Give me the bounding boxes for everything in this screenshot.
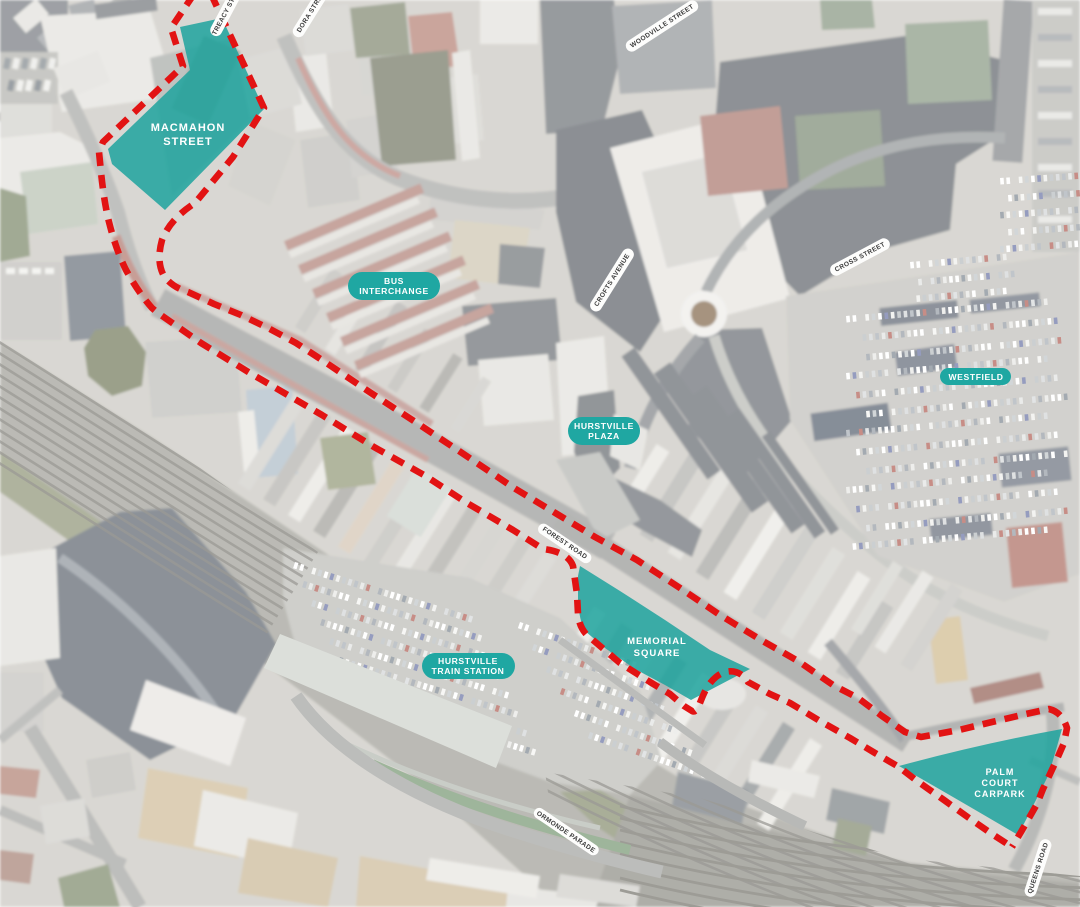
svg-text:HURSTVILLE: HURSTVILLE [438,656,498,666]
svg-text:WESTFIELD: WESTFIELD [948,372,1003,382]
svg-text:BUS: BUS [384,276,404,286]
svg-text:SQUARE: SQUARE [634,648,681,659]
svg-text:STREET: STREET [163,136,212,148]
svg-text:HURSTVILLE: HURSTVILLE [574,421,634,431]
svg-text:PLAZA: PLAZA [588,431,620,441]
svg-text:PALM: PALM [986,767,1015,777]
svg-text:TRAIN STATION: TRAIN STATION [432,666,505,676]
svg-text:CARPARK: CARPARK [974,789,1025,799]
svg-text:INTERCHANGE: INTERCHANGE [359,286,429,296]
svg-text:MEMORIAL: MEMORIAL [627,636,687,647]
svg-text:MACMAHON: MACMAHON [151,122,226,134]
svg-text:COURT: COURT [982,778,1019,788]
